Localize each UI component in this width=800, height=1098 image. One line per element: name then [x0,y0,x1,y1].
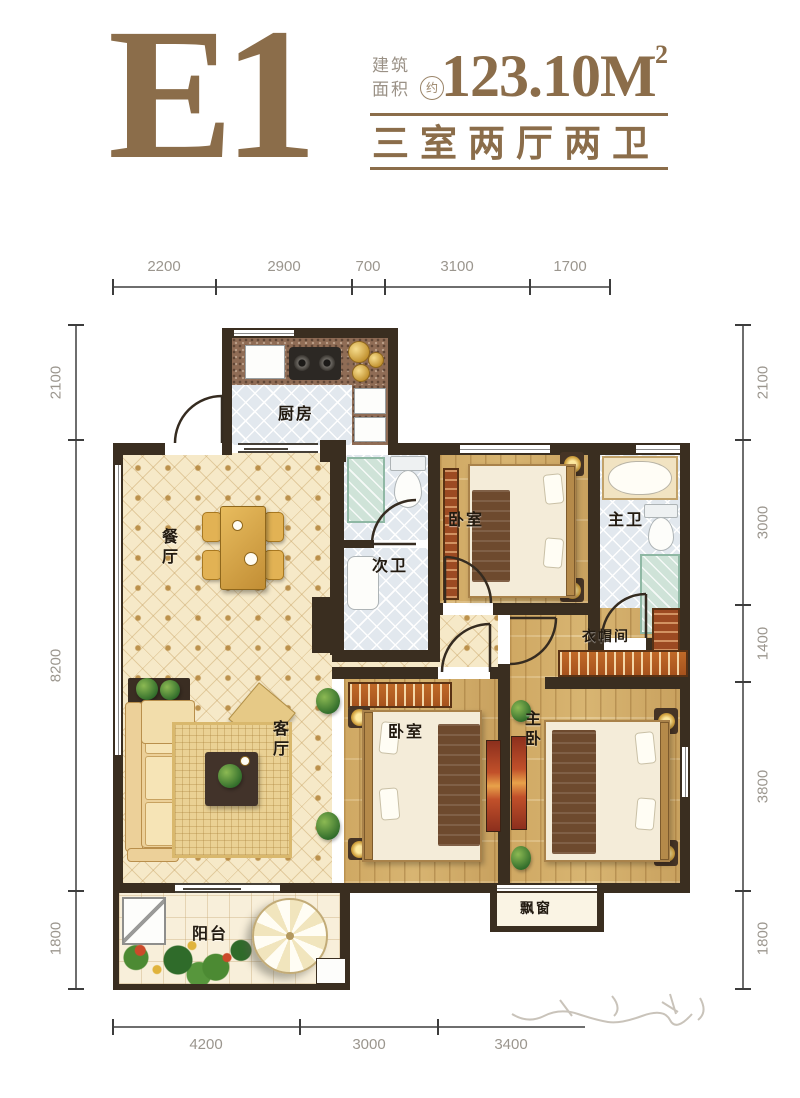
room-label-bedroom-mid: 卧室 [388,718,424,742]
dim-tick [68,988,84,990]
bed-headboard [566,466,575,596]
entry-door-opening [165,443,222,455]
dim-right-1: 2100 [755,353,772,413]
bed-headboard [660,722,669,860]
dining-chair [202,550,222,580]
dim-tick [735,890,751,892]
dim-tick [112,279,114,295]
window-kitchen [234,328,294,338]
dim-right-4: 3800 [755,757,772,817]
kitchen-fridge-upper [354,388,386,414]
closet-wardrobe-bottom [558,650,688,677]
dim-left-3: 1800 [48,909,65,969]
toilet-tank [644,504,678,518]
kitchen-fridge-lower [354,417,386,442]
dim-tick [735,324,751,326]
dim-tick [299,1019,301,1035]
pillow [542,473,564,505]
tv-cabinet [511,736,527,830]
dim-tick [112,1019,114,1035]
plant [511,846,531,870]
pillow [543,537,565,569]
wall-closet-bottom [545,677,690,689]
dim-right-2: 3000 [755,493,772,553]
header-rule-top [370,113,668,116]
wall-second-bath-divider [344,540,374,548]
area-superscript: 2 [655,40,668,70]
wall-bay-right [597,893,604,932]
toilet [394,470,422,508]
dim-bottom-3: 3400 [481,1036,541,1053]
dining-chair [264,512,284,542]
dim-line-top [113,286,610,288]
kitchen-kettle [352,364,370,382]
dim-top-1: 2200 [134,258,194,275]
room-label-balcony: 阳台 [192,920,228,944]
wall-balcony-bottom [113,984,350,990]
blanket [472,490,510,582]
dim-line-bottom [113,1026,585,1028]
window-master-bath [636,443,680,455]
balcony-sliding-door [175,883,280,893]
wall-bedroom-masterbath [588,455,600,650]
dim-left-1: 2100 [48,353,65,413]
area-label-line1: 建筑 [372,54,410,78]
room-label-living: 客厅 [266,720,290,760]
dim-tick [735,604,751,606]
wall-second-bath-bottom [332,650,440,662]
bedroom-mid-door-opening [438,667,490,679]
window-master-bedroom [680,747,690,797]
room-label-bay-window: 飘窗 [520,898,552,918]
floorplan-page: E1 建筑 面积 约 123.10M 2 三室两厅两卫 2200 2900 70… [0,0,800,1098]
area-label-line2: 面积 [372,78,410,102]
flower-bed [115,936,255,984]
second-bath-door-opening [374,540,428,548]
wall-pier [312,597,344,653]
unit-name: E1 [108,0,338,190]
toilet-tank [390,456,426,471]
wall-bay-bottom [490,926,604,932]
scribble-watermark [512,994,704,1025]
dim-tick [215,279,217,295]
header-rule-bottom [370,167,668,170]
dim-bottom-2: 3000 [339,1036,399,1053]
dim-tick [735,681,751,683]
dining-chair [264,550,284,580]
bedroom-top-door-opening [443,603,493,615]
room-label-master-bath: 主卫 [608,506,644,530]
room-label-bedroom-top: 卧室 [448,506,484,530]
wardrobe [443,468,459,600]
dim-top-3: 700 [338,258,398,275]
kitchen-bowl [368,352,384,368]
dim-tick [68,890,84,892]
dim-left-2: 8200 [48,636,65,696]
kitchen-cutting-board [245,345,285,379]
dim-tick [384,279,386,295]
toilet [648,517,674,551]
dim-top-5: 1700 [540,258,600,275]
dining-table [220,506,266,590]
dim-tick [529,279,531,295]
plant [160,680,180,700]
tv-cabinet [486,740,501,832]
window-bay [497,883,597,893]
pillow [379,787,401,821]
dim-tick [351,279,353,295]
balcony-step [316,958,346,984]
dim-top-2: 2900 [254,258,314,275]
dining-plate [232,520,243,531]
bathtub-inner [608,461,672,495]
plant [136,678,158,700]
wall-kitchen-left [222,328,232,455]
plant [316,812,340,840]
dining-chair [202,512,222,542]
dim-bottom-1: 4200 [176,1036,236,1053]
dim-tick [437,1019,439,1035]
entry-door-arc [175,396,222,443]
pillow [635,797,657,831]
table-plant [218,764,242,788]
dim-top-4: 3100 [427,258,487,275]
dim-tick [735,439,751,441]
room-label-closet: 衣帽间 [582,626,630,646]
window-living-left [113,465,123,755]
master-suite-door-opening [498,615,510,664]
stove-burner [319,355,335,371]
wardrobe [348,682,452,708]
bed-headboard [364,712,373,860]
area-label: 建筑 面积 [372,54,410,102]
dim-tick [68,439,84,441]
blanket [438,724,480,846]
dim-tick [68,324,84,326]
table-cup [240,756,250,766]
room-label-kitchen: 厨房 [278,400,314,424]
dim-tick [735,988,751,990]
window-bedroom-top [460,443,550,455]
wall-kitchen-right [388,328,398,455]
dim-right-3: 1400 [755,614,772,674]
dining-plate [244,552,258,566]
room-label-second-bath: 次卫 [372,552,408,576]
area-value: 123.10M [441,44,656,108]
pillow [634,731,656,765]
layout-text: 三室两厅两卫 [372,121,670,167]
wall-second-bath-right [428,455,440,662]
dim-tick [609,279,611,295]
stove-burner [294,355,310,371]
kitchen-sliding-door [238,443,318,453]
room-label-dining: 餐厅 [155,528,179,568]
dim-right-5: 1800 [755,909,772,969]
kitchen-bowl [348,341,370,363]
blanket [552,730,596,854]
shower [347,457,385,523]
plant [316,688,340,714]
room-label-master-bedroom: 主卧 [518,710,542,750]
